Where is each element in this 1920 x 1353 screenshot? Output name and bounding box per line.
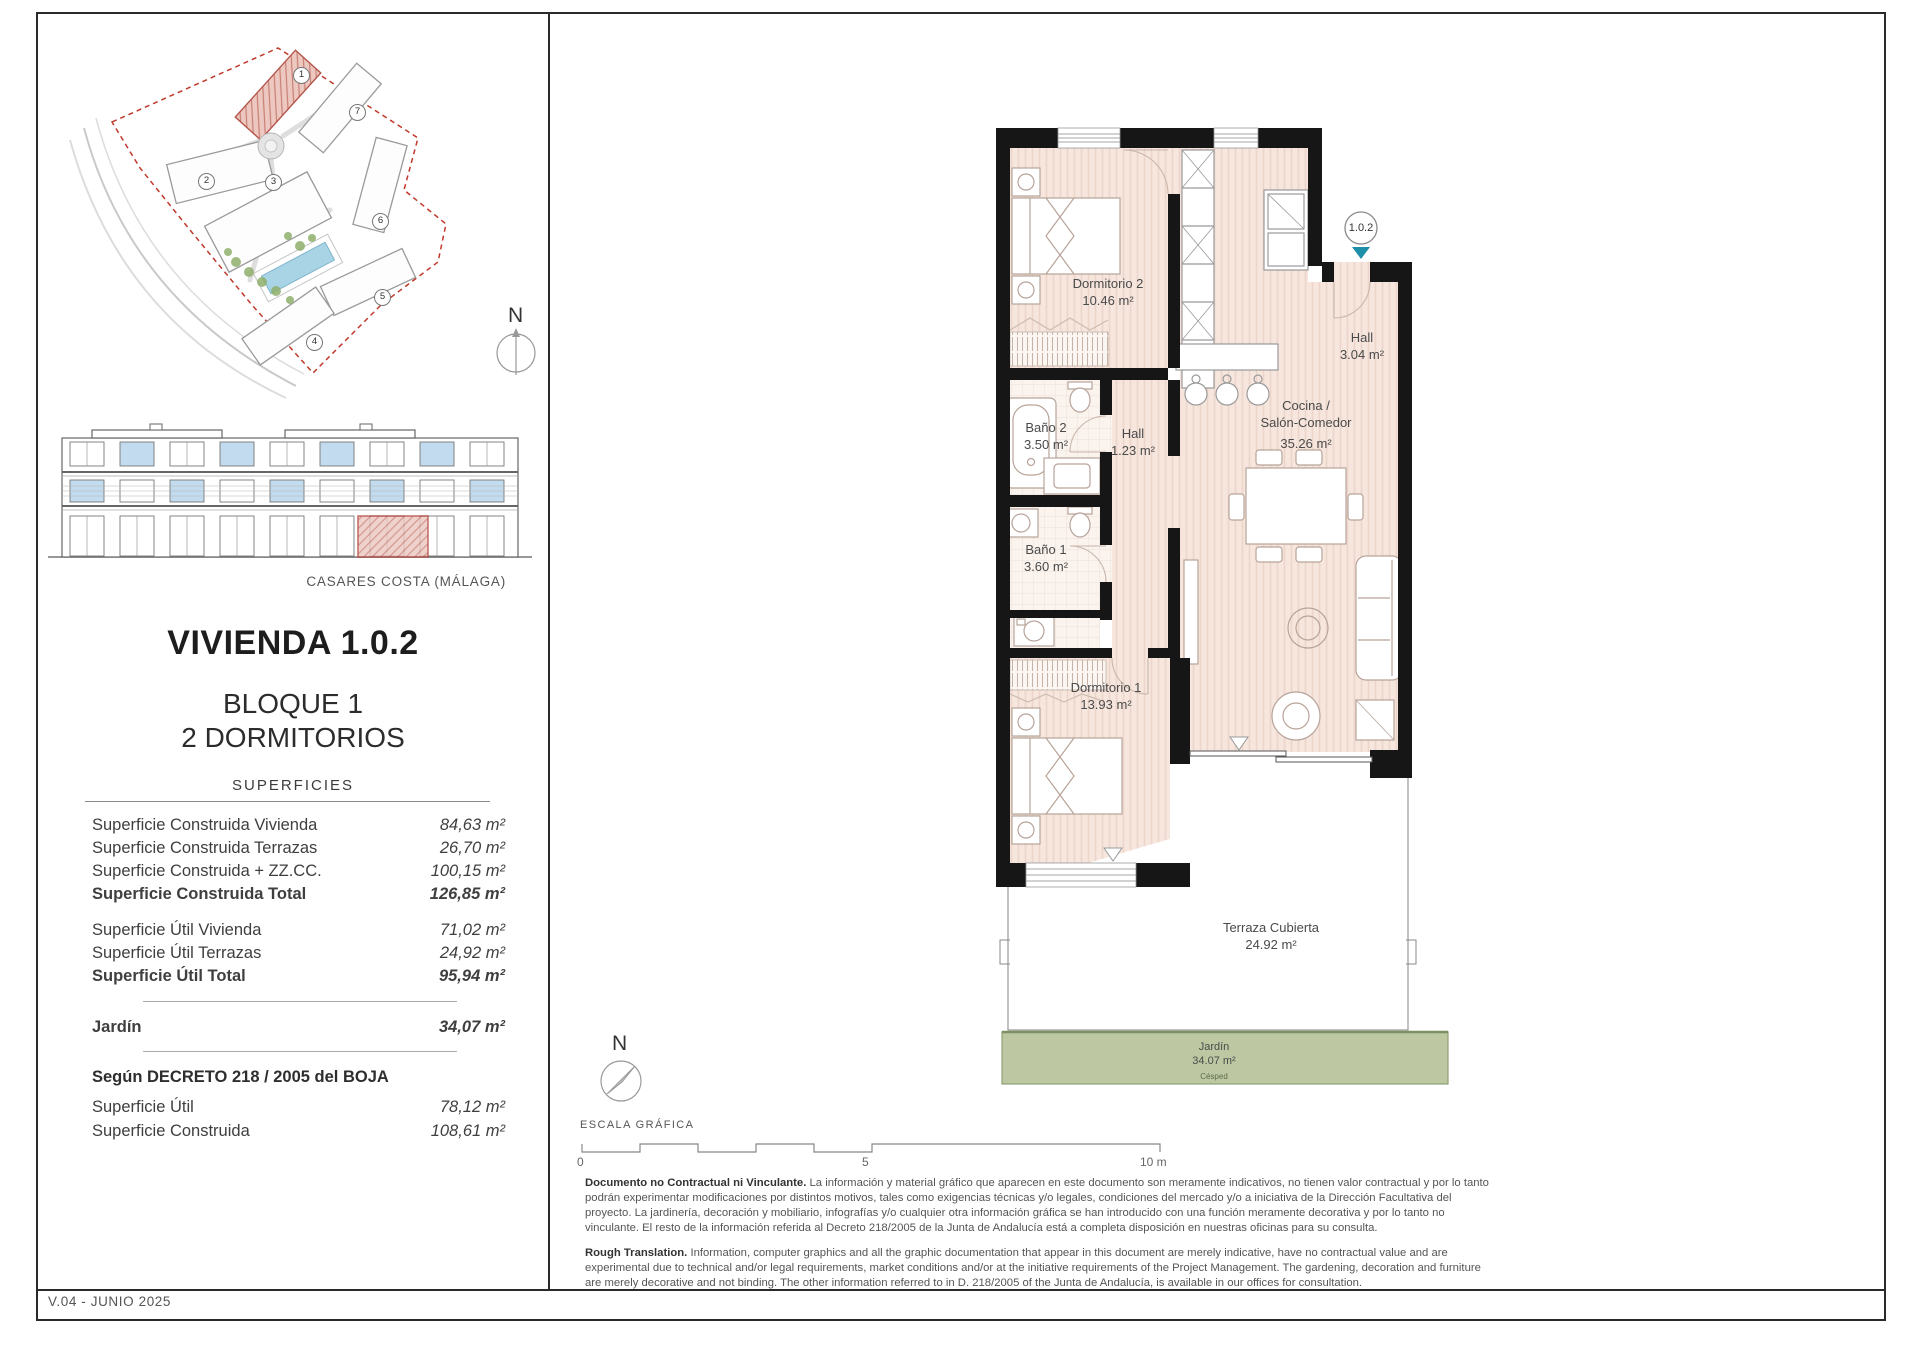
table-row-total: Superficie Útil Total 95,94 m²: [92, 967, 505, 986]
unit-title: VIVIENDA 1.0.2: [37, 624, 549, 663]
decreto-heading: Según DECRETO 218 / 2005 del BOJA: [92, 1068, 505, 1087]
north-label: N: [508, 304, 523, 328]
site-building-number: 1: [293, 67, 310, 84]
row-label: Superficie Útil Total: [92, 967, 246, 986]
row-value: 84,63 m²: [440, 816, 505, 835]
row-label: Jardín: [92, 1018, 142, 1037]
site-building-number: 7: [349, 104, 366, 121]
scale-tick-5: 5: [862, 1155, 869, 1169]
site-building-number: 6: [372, 213, 389, 230]
table-row: Superficie Útil Vivienda 71,02 m²: [92, 921, 505, 940]
row-label: Superficie Construida Vivienda: [92, 816, 317, 835]
table-rule: [143, 1001, 457, 1002]
site-building-number: 5: [374, 289, 391, 306]
row-label: Superficie Construida: [92, 1122, 250, 1141]
table-row: Superficie Construida Vivienda 84,63 m²: [92, 816, 505, 835]
row-value: 78,12 m²: [440, 1098, 505, 1117]
row-value: 24,92 m²: [440, 944, 505, 963]
room-label-banio2: Baño 23.50 m²: [986, 420, 1106, 454]
table-row-total: Superficie Construida Total 126,85 m²: [92, 885, 505, 904]
scale-tick-0: 0: [577, 1155, 584, 1169]
room-label-jardin: Jardín34.07 m² Césped: [1150, 1040, 1278, 1082]
disclaimer-block: Documento no Contractual ni Vinculante. …: [585, 1176, 1493, 1300]
unit-badge-label: 1.0.2: [1344, 222, 1378, 234]
table-row: Superficie Útil 78,12 m²: [92, 1098, 505, 1117]
row-label: Superficie Útil Terrazas: [92, 944, 261, 963]
row-value: 34,07 m²: [439, 1018, 505, 1037]
row-label: Superficie Construida Total: [92, 885, 306, 904]
site-building-number: 4: [306, 334, 323, 351]
table-row-garden: Jardín 34,07 m²: [92, 1018, 505, 1037]
row-value: 100,15 m²: [431, 862, 505, 881]
row-label: Superficie Útil Vivienda: [92, 921, 261, 940]
scale-bar-title: ESCALA GRÁFICA: [580, 1119, 694, 1131]
table-row: Superficie Construida Terrazas 26,70 m²: [92, 839, 505, 858]
room-label-dormitorio1: Dormitorio 113.93 m²: [1040, 680, 1172, 714]
site-building-number: 3: [265, 174, 282, 191]
room-label-dormitorio2: Dormitorio 210.46 m²: [1040, 276, 1176, 310]
room-label-cocina-salon: Cocina /Salón-Comedor 35.26 m²: [1232, 398, 1380, 453]
table-row: Superficie Construida + ZZ.CC. 100,15 m²: [92, 862, 505, 881]
table-rule: [143, 1051, 457, 1052]
disclaimer-es: Documento no Contractual ni Vinculante. …: [585, 1176, 1493, 1237]
room-label-terraza: Terraza Cubierta24.92 m²: [1191, 920, 1351, 954]
table-rule: [85, 801, 490, 802]
block-subtitle: BLOQUE 1: [37, 688, 549, 720]
version-label: V.04 - JUNIO 2025: [48, 1294, 171, 1309]
room-label-hall-entrada: Hall3.04 m²: [1320, 330, 1404, 364]
north-label-plan: N: [612, 1032, 627, 1056]
disclaimer-en: Rough Translation. Information, computer…: [585, 1246, 1493, 1291]
table-row: Superficie Útil Terrazas 24,92 m²: [92, 944, 505, 963]
table-row: Superficie Construida 108,61 m²: [92, 1122, 505, 1141]
room-label-banio1: Baño 13.60 m²: [986, 542, 1106, 576]
row-value: 71,02 m²: [440, 921, 505, 940]
scale-tick-10: 10 m: [1140, 1155, 1167, 1169]
plan-sheet: { "page": { "version": "V.04 - JUNIO 202…: [0, 0, 1920, 1353]
surfaces-table-title: SUPERFICIES: [37, 777, 549, 794]
row-label: Superficie Construida Terrazas: [92, 839, 317, 858]
room-label-hall-interior: Hall1.23 m²: [1098, 426, 1168, 460]
bedrooms-subtitle: 2 DORMITORIOS: [37, 722, 549, 754]
row-value: 108,61 m²: [431, 1122, 505, 1141]
row-label: Superficie Útil: [92, 1098, 194, 1117]
row-value: 26,70 m²: [440, 839, 505, 858]
row-label: Superficie Construida + ZZ.CC.: [92, 862, 322, 881]
site-building-number: 2: [198, 173, 215, 190]
row-value: 126,85 m²: [430, 885, 505, 904]
location-caption: CASARES COSTA (MÁLAGA): [200, 574, 506, 589]
row-value: 95,94 m²: [439, 967, 505, 986]
